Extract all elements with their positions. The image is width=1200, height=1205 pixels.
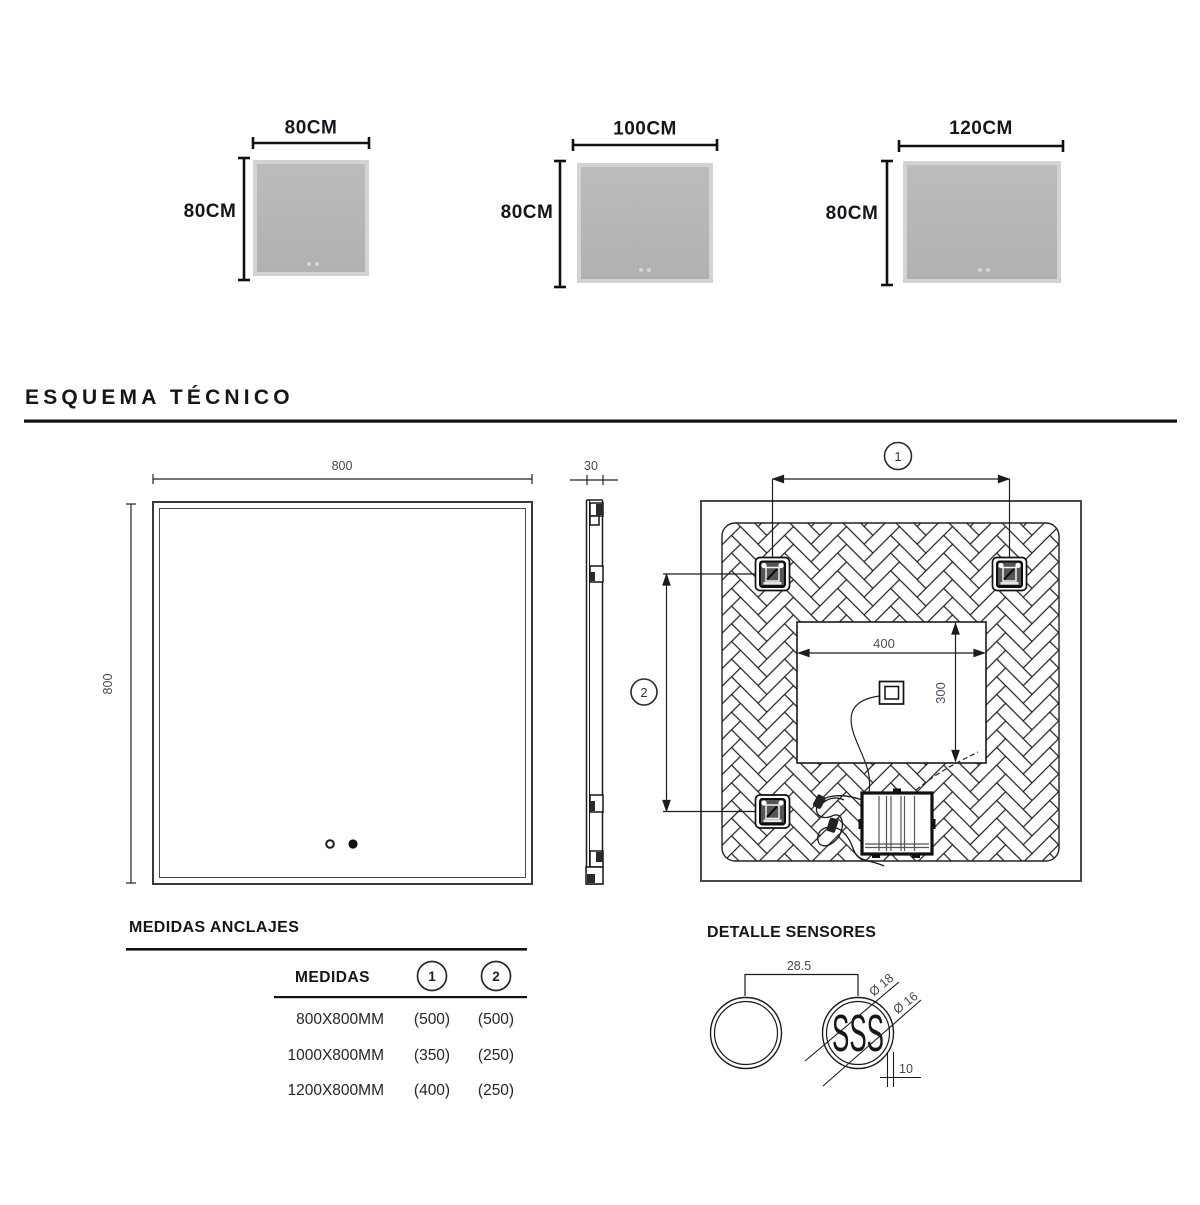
svg-text:1000X800MM: 1000X800MM [287, 1047, 384, 1064]
svg-text:(400): (400) [414, 1082, 450, 1099]
svg-text:30: 30 [584, 459, 598, 473]
svg-text:2: 2 [640, 685, 647, 700]
svg-text:1200X800MM: 1200X800MM [287, 1082, 384, 1099]
svg-text:300: 300 [933, 682, 948, 704]
svg-text:ESQUEMA TÉCNICO: ESQUEMA TÉCNICO [25, 386, 294, 409]
svg-text:80CM: 80CM [826, 203, 879, 224]
svg-text:100CM: 100CM [613, 119, 677, 140]
svg-text:800: 800 [101, 674, 115, 695]
svg-text:80CM: 80CM [184, 201, 237, 222]
svg-text:1: 1 [894, 449, 901, 464]
svg-text:28.5: 28.5 [787, 959, 811, 973]
svg-text:80CM: 80CM [501, 202, 554, 223]
svg-text:SSS: SSS [832, 1004, 884, 1062]
svg-text:MEDIDAS: MEDIDAS [295, 969, 370, 986]
svg-text:800: 800 [332, 459, 353, 473]
svg-text:1: 1 [428, 969, 436, 984]
svg-text:(350): (350) [414, 1047, 450, 1064]
svg-text:(250): (250) [478, 1082, 514, 1099]
svg-text:80CM: 80CM [285, 118, 338, 139]
svg-text:400: 400 [873, 636, 895, 651]
svg-text:(250): (250) [478, 1047, 514, 1064]
svg-text:Ø 18: Ø 18 [867, 971, 897, 999]
svg-text:(500): (500) [478, 1011, 514, 1028]
svg-text:(500): (500) [414, 1011, 450, 1028]
svg-text:2: 2 [492, 969, 500, 984]
svg-text:MEDIDAS ANCLAJES: MEDIDAS ANCLAJES [129, 919, 299, 936]
svg-text:800X800MM: 800X800MM [296, 1011, 384, 1028]
svg-text:120CM: 120CM [949, 118, 1013, 139]
svg-text:Ø 16: Ø 16 [891, 989, 921, 1017]
svg-text:DETALLE SENSORES: DETALLE SENSORES [707, 924, 876, 941]
svg-text:10: 10 [899, 1062, 913, 1076]
